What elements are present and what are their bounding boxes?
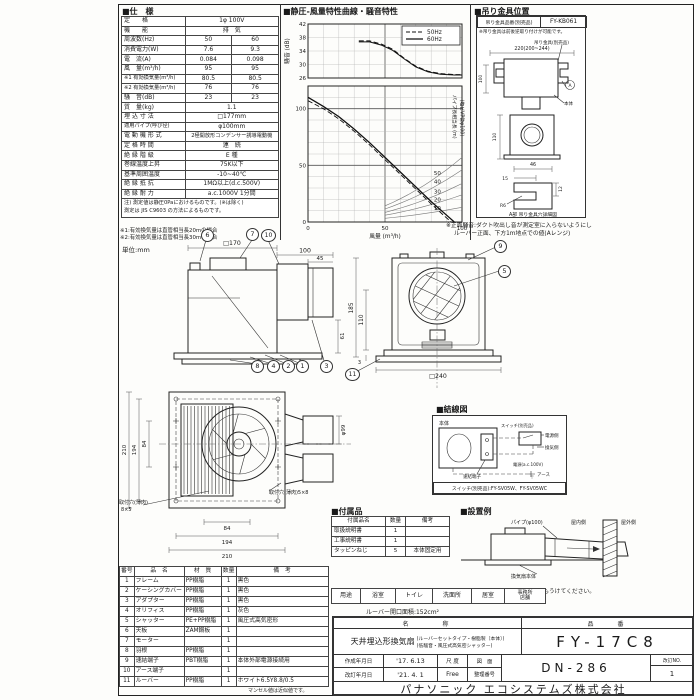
section-divider-2 (470, 4, 471, 240)
wiring-box: 本体 速結端子 スイッチ(別売品) 電源側 換気側 電源(a.c.100V) ア… (432, 415, 567, 495)
table-row: 巻線温度上昇75K以下 (122, 160, 279, 170)
bracket-box: 吊り金具品番(別売品) FY-KB061 ※吊り金具は前後逆取り付けが可能です。… (476, 15, 586, 218)
bracket-detail-caption: A部 吊り金具穴詳細図 (509, 211, 557, 218)
section-divider-1 (280, 4, 281, 240)
install-body-label: 換気扇本体 (511, 573, 536, 580)
table-row: 機 能排 気 (122, 26, 279, 36)
dim-100d: 100 (299, 248, 311, 255)
dim-phi99: φ99 (341, 424, 347, 435)
svg-text:38: 38 (299, 36, 306, 42)
svg-text:40: 40 (434, 180, 441, 186)
svg-text:50Hz: 50Hz (427, 30, 442, 36)
dim-240: □240 (429, 373, 447, 380)
product-subname-2: (低騒音・風圧式高気密シャッター) (417, 642, 505, 649)
svg-text:0: 0 (306, 226, 310, 232)
usage-table: 用途 浴室 トイレ 洗面所 居室 事務所店舗 (331, 588, 546, 604)
dim-110: 110 (492, 133, 498, 142)
drawing-number: DN-286 (501, 654, 651, 682)
dim-15: 15 (502, 176, 508, 182)
dim-45: 45 (317, 256, 324, 262)
svg-text:50: 50 (434, 171, 441, 177)
dim-100v: 100 (478, 75, 484, 84)
dim-46: 46 (530, 162, 536, 168)
model-number: FY-17C8 (521, 628, 694, 655)
svg-text:50: 50 (299, 163, 306, 169)
parts-table: 番号品 名材 質数量備 考 1フレームPP樹脂1黒色 2ケーシングカバーPP樹脂… (119, 566, 329, 687)
switch-label: スイッチ(別売品) (501, 422, 534, 429)
bracket-note: ※吊り金具は前後逆取り付けが可能です。 (479, 29, 565, 35)
earth-label: アース (537, 472, 551, 478)
dim-84h: 84 (224, 526, 231, 532)
table-row: 適用パイプ(呼び径)φ100mm (122, 122, 279, 132)
bracket-label: 吊り金具(別売品) (534, 39, 569, 46)
svg-text:100: 100 (296, 107, 307, 113)
callout-10: 10 (261, 229, 276, 242)
table-row: 工事説明書1 (332, 537, 450, 547)
table-row: 電 流(A)0.0840.098 (122, 55, 279, 65)
install-pipe-label: パイプ(φ100) (511, 520, 543, 526)
table-row: 消費電力(W)7.69.3 (122, 45, 279, 55)
callout-9: 9 (494, 240, 507, 253)
install-indoor-label: 屋内側 (571, 519, 586, 526)
dim-220: 220(200~244) (514, 46, 549, 52)
table-row: ※2 有効換気量(m³/h)7676 (122, 84, 279, 94)
table-row: 番号品 名材 質数量備 考 (120, 567, 329, 577)
table-row: 7モーター1 (120, 637, 329, 647)
dim-84v: 84 (142, 440, 148, 447)
callout-8: 8 (251, 360, 264, 373)
dim-185: 185 (349, 302, 355, 313)
revision-number: 1 (650, 665, 694, 682)
svg-text:42: 42 (299, 22, 306, 28)
power-label: 電源(a.c.100V) (513, 461, 543, 468)
table-row: 8羽根PP樹脂1 (120, 647, 329, 657)
detail-mark-a: A (568, 83, 572, 89)
spec-note-1: 注) 測定値は静圧0Paにおけるものです。(※は除く) (124, 200, 243, 206)
callout-5: 5 (498, 265, 511, 278)
spec-table: 定 格1φ 100V 機 能排 気 周波数(Hz)5060 消費電力(W)7.6… (121, 16, 279, 218)
svg-text:パイプ長相当長 (m): パイプ長相当長 (m) (451, 95, 458, 139)
product-subname-1: (ルーバーセットタイプ・樹脂製〔本体〕) (417, 635, 505, 642)
table-row: 注) 測定値は静圧0Paにおけるものです。(※は除く)測定は JIS C9603… (122, 199, 279, 218)
table-row: 風 量(m³/h)9595 (122, 64, 279, 74)
company-name: パナソニック エコシステムズ株式会社 (333, 681, 694, 696)
unit-label: 単位:mm (122, 244, 150, 254)
svg-text:20: 20 (434, 197, 441, 203)
svg-text:30: 30 (434, 189, 441, 195)
drawing-label-1: 図 面 (467, 654, 502, 668)
switch-side1-label: 電源側 (545, 432, 559, 439)
bracket-part-number: FY-KB061 (540, 16, 587, 28)
dim-170: □170 (223, 240, 241, 247)
table-row: 10アース端子1 (120, 667, 329, 677)
dim-61: 61 (340, 333, 346, 340)
dim-r6: R6 (500, 203, 506, 209)
callout-11: 11 (345, 368, 360, 381)
created-date: '17. 6.13 (383, 654, 438, 668)
callout-3: 3 (320, 360, 333, 373)
dim-12: 12 (558, 186, 564, 192)
table-row: 5シャッターPE+PP樹脂1風圧式高気密形 (120, 617, 329, 627)
table-row: ※1 有効換気量(m³/h)80.580.5 (122, 74, 279, 84)
table-row: 電 動 機 形 式2極開放形コンデンサー誘導電動機 (122, 132, 279, 142)
spec-note-2: 測定は JIS C9603 の方法によるものです。 (124, 208, 224, 214)
install-example-drawing: パイプ(φ100) 屋内側 屋外側 換気扇本体 (455, 514, 693, 582)
dim-194v: 194 (132, 444, 138, 455)
svg-text:(塩ビVP管φ100): (塩ビVP管φ100) (458, 100, 465, 137)
table-row: 3アダプターPP樹脂1黒色 (120, 597, 329, 607)
front-view-drawing: 185 110 3 □240 (348, 238, 508, 402)
svg-text:30: 30 (299, 63, 306, 69)
table-row: 絶 縁 階 級E 種 (122, 151, 279, 161)
plan-view-drawing: φ99 210 194 84 84 194 210 取付穴(薄肉) 8×5 取付… (119, 388, 359, 566)
parts-note: マンセル値は近似値です。 (248, 687, 308, 694)
table-row: タッピンねじ5本体固定用 (332, 547, 450, 557)
table-row: 11ルーバーPP樹脂1ホワイト6.5Y8.8/0.5 (120, 677, 329, 687)
table-row: 4オリフィスPP樹脂1灰色 (120, 607, 329, 617)
callout-2: 2 (282, 360, 295, 373)
product-name-cell: 天井埋込形換気扇 (ルーバーセットタイプ・樹脂製〔本体〕) (低騒音・風圧式高気… (333, 628, 522, 655)
table-row: 質 量(kg)1.1 (122, 103, 279, 113)
table-row: 埋 込 寸 法□177mm (122, 112, 279, 122)
title-block: 名 称 品 番 天井埋込形換気扇 (ルーバーセットタイプ・樹脂製〔本体〕) (低… (332, 616, 693, 695)
table-row: 騒 音(dB)2323 (122, 93, 279, 103)
mount-hole-label-right: 取付穴(薄肉)5×8 (269, 489, 308, 496)
svg-text:60Hz: 60Hz (427, 37, 442, 43)
wiring-diagram: 本体 速結端子 スイッチ(別売品) 電源側 換気側 電源(a.c.100V) ア… (433, 416, 566, 482)
switch-models: スイッチ(別売品):FY-SV05W、FY-SV05WC (433, 482, 566, 494)
revised-label: 改訂年月日 (333, 667, 384, 682)
table-row: 9速結端子PBT樹脂1本体外部電源接続用 (120, 657, 329, 667)
table-row: 付属品名数量備考 (332, 517, 450, 527)
table-row: 用途 浴室 トイレ 洗面所 居室 事務所店舗 (332, 589, 546, 604)
datasheet-page: { "chart_data": [ { "type": "line", "tit… (0, 0, 700, 700)
table-row: 定 格1φ 100V (122, 17, 279, 27)
dim-3: 3 (358, 360, 361, 366)
performance-chart: 263034384250Hz60Hz騒音 (dB)050100102030405… (282, 16, 470, 242)
created-label: 作成年月日 (333, 654, 384, 668)
dim-110f: 110 (359, 314, 365, 325)
table-row: 定 格 時 間連 続 (122, 141, 279, 151)
usage-label: 用途 (332, 589, 361, 604)
svg-text:34: 34 (299, 49, 306, 55)
bracket-part-label: 吊り金具品番(別売品) (477, 16, 541, 28)
scale-label: 尺 度 (437, 654, 468, 668)
dim-194h: 194 (222, 540, 233, 546)
front-noise-note-2: ルーバー正面、下方1m地点での値(Aレンジ) (454, 228, 570, 237)
table-row: 1フレームPP樹脂1黒色 (120, 577, 329, 587)
table-row: 絶 縁 耐 力a.c.1000V 1分間 (122, 189, 279, 199)
table-row: 2ケーシングカバーPP樹脂1黒色 (120, 587, 329, 597)
product-name: 天井埋込形換気扇 (351, 636, 415, 647)
table-row: 周波数(Hz)5060 (122, 36, 279, 46)
callout-6: 6 (201, 229, 214, 242)
switch-side2-label: 換気側 (545, 444, 559, 451)
body-label: 本体 (564, 100, 573, 107)
table-row: 絶 縁 抵 抗1MΩ以上(d.c.500V) (122, 180, 279, 190)
louver-area-label: ルーバー開口面積:152cm² (366, 607, 439, 616)
svg-text:騒音 (dB): 騒音 (dB) (283, 38, 291, 64)
table-row: 取扱説明書1 (332, 527, 450, 537)
wiring-body-label: 本体 (439, 420, 449, 427)
bracket-drawing: 吊り金具(別売品) 220(200~244) 100 A 本体 110 46 1… (478, 37, 585, 217)
svg-text:50: 50 (382, 226, 389, 232)
callout-7: 7 (246, 228, 259, 241)
mount-hole-label-line2: 8×5 (121, 507, 132, 513)
svg-text:26: 26 (299, 76, 306, 82)
wiring-title: ■結線図 (436, 404, 468, 415)
accessories-table: 付属品名数量備考 取扱説明書1 工事説明書1 タッピンねじ5本体固定用 (331, 516, 450, 557)
dim-210h: 210 (222, 554, 233, 560)
callout-4: 4 (267, 360, 280, 373)
callout-1: 1 (296, 360, 309, 373)
dim-210v: 210 (122, 444, 128, 455)
table-row: 6天板ZAM鋼板1 (120, 627, 329, 637)
install-outdoor-label: 屋外側 (621, 519, 636, 526)
table-row: 基準周囲温度-10~40℃ (122, 170, 279, 180)
